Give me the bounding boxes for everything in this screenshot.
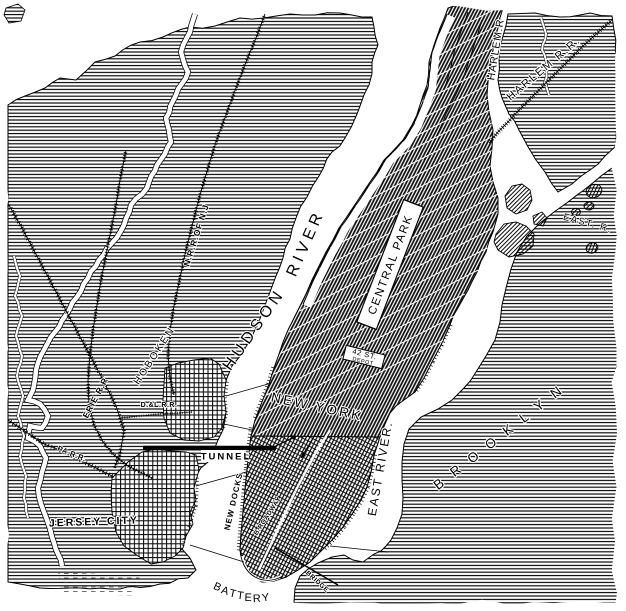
svg-text:D.&L.R.R.: D.&L.R.R. (141, 402, 178, 409)
svg-text:R: R (253, 593, 262, 605)
svg-text:TUNNEL: TUNNEL (201, 452, 252, 463)
svg-text:E: E (244, 592, 252, 604)
